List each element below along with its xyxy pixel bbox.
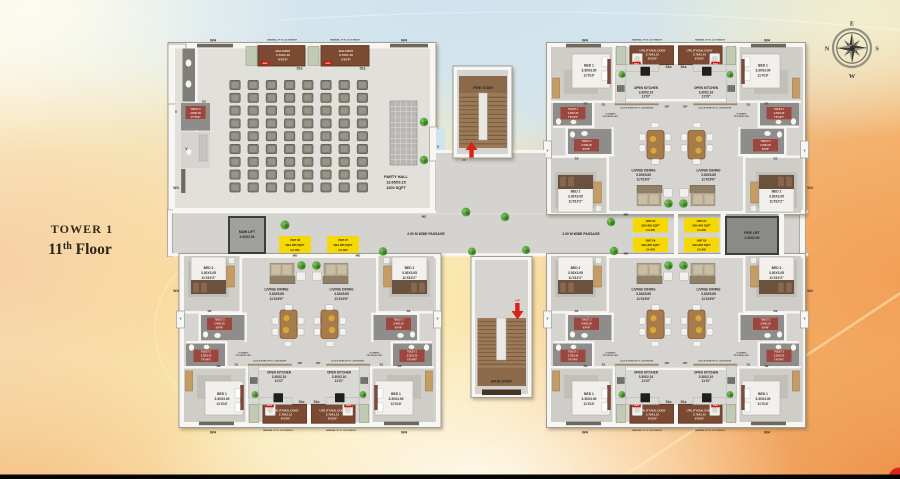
svg-text:MD: MD [422, 215, 427, 219]
svg-text:D1a: D1a [681, 65, 687, 69]
svg-text:HANDRAIL UP TO 1.20 M HEIGHT: HANDRAIL UP TO 1.20 M HEIGHT [263, 429, 294, 432]
svg-text:D2: D2 [774, 156, 778, 160]
svg-text:D1a: D1a [297, 67, 303, 71]
svg-text:HANDRAIL UP TO 1.20 M HEIGHT: HANDRAIL UP TO 1.20 M HEIGHT [632, 429, 663, 432]
svg-text:MD: MD [624, 213, 629, 217]
svg-text:HANDRAIL UP TO 1.20 M HEIGHT: HANDRAIL UP TO 1.20 M HEIGHT [695, 429, 726, 432]
svg-text:D2: D2 [217, 364, 221, 368]
svg-text:W4: W4 [210, 430, 217, 435]
svg-text:V: V [436, 317, 438, 321]
svg-text:KW2: KW2 [713, 405, 719, 407]
svg-text:D1: D1 [380, 363, 384, 367]
svg-text:W4: W4 [210, 38, 217, 43]
svg-text:OP: OP [683, 104, 687, 108]
svg-text:V: V [803, 149, 805, 153]
svg-text:MD: MD [356, 254, 361, 258]
svg-text:MAIN STAIR: MAIN STAIR [491, 380, 512, 384]
svg-text:HANDRAIL UP TO 1.20 M HEIGHT: HANDRAIL UP TO 1.20 M HEIGHT [695, 39, 726, 42]
svg-text:TOILET 12.25X1.357'6"X4'6": TOILET 12.25X1.357'6"X4'6" [568, 109, 579, 119]
svg-text:MAIN LIFT2.00X2.00: MAIN LIFT2.00X2.00 [239, 230, 255, 239]
svg-text:D2: D2 [208, 309, 212, 313]
svg-text:N: N [825, 46, 830, 53]
svg-text:D1a: D1a [681, 400, 687, 404]
svg-text:BLOCK WORK UP TO 1.20M HEIGHT: BLOCK WORK UP TO 1.20M HEIGHT [332, 361, 366, 363]
svg-text:OP: OP [665, 104, 669, 108]
svg-text:W: W [849, 73, 856, 80]
svg-text:D2: D2 [765, 364, 769, 368]
svg-text:OP: OP [316, 361, 320, 365]
svg-text:UP: UP [462, 158, 466, 162]
svg-text:2.00 M WIDE PASSAGE: 2.00 M WIDE PASSAGE [407, 232, 445, 236]
svg-text:TOILET 12.25X1.357'6"X4'6": TOILET 12.25X1.357'6"X4'6" [774, 352, 785, 362]
svg-text:D1: D1 [747, 103, 751, 107]
svg-text:V: V [546, 149, 548, 153]
svg-text:TOILET 12.25X1.357'6"X4'6": TOILET 12.25X1.357'6"X4'6" [774, 109, 785, 119]
svg-text:D1a: D1a [299, 400, 305, 404]
svg-text:TOWER 1: TOWER 1 [51, 222, 114, 236]
svg-text:D1a: D1a [360, 67, 366, 71]
svg-text:W4: W4 [582, 430, 589, 435]
svg-text:V: V [803, 317, 805, 321]
svg-text:D1a: D1a [666, 400, 672, 404]
svg-text:BLOCK WORK UP TO 1.20M HEIGHT: BLOCK WORK UP TO 1.20M HEIGHT [621, 361, 655, 363]
svg-text:FIRE LIFT2.00X2.00: FIRE LIFT2.00X2.00 [744, 231, 759, 240]
svg-text:2.00 M WIDE PASSAGE: 2.00 M WIDE PASSAGE [562, 232, 600, 236]
svg-text:W4: W4 [173, 186, 178, 190]
svg-text:11th Floor: 11th Floor [48, 241, 112, 259]
svg-text:BLOCK WORK UP TO 1.20M HEIGHT: BLOCK WORK UP TO 1.20M HEIGHT [254, 361, 288, 363]
svg-text:D2: D2 [765, 101, 769, 105]
svg-text:D1: D1 [602, 363, 606, 367]
svg-text:KW2: KW2 [267, 405, 273, 407]
svg-text:KW2: KW2 [346, 405, 352, 407]
svg-text:V: V [546, 317, 548, 321]
svg-text:D2: D2 [398, 364, 402, 368]
svg-text:KW2: KW2 [263, 63, 269, 65]
svg-text:OP: OP [298, 361, 302, 365]
svg-text:D2: D2 [575, 309, 579, 313]
svg-text:HANDRAIL UP TO 1.20 M HEIGHT: HANDRAIL UP TO 1.20 M HEIGHT [267, 39, 298, 42]
svg-text:D2: D2 [584, 364, 588, 368]
svg-text:D1: D1 [747, 363, 751, 367]
svg-text:S: S [875, 46, 879, 53]
svg-text:MD: MD [624, 252, 629, 256]
svg-text:W4: W4 [582, 38, 589, 43]
svg-text:D1a: D1a [666, 65, 672, 69]
svg-text:BLOCK WORK UP TO 1.20M HEIGHT: BLOCK WORK UP TO 1.20M HEIGHT [621, 108, 655, 110]
svg-text:OP: OP [683, 361, 687, 365]
svg-text:BLOCK WORK UP TO 1.20M HEIGHT: BLOCK WORK UP TO 1.20M HEIGHT [699, 108, 733, 110]
svg-text:D1a: D1a [314, 400, 320, 404]
svg-text:D1: D1 [235, 363, 239, 367]
svg-text:BLOCK WORK UP TO 1.20M HEIGHT: BLOCK WORK UP TO 1.20M HEIGHT [699, 361, 733, 363]
svg-text:V: V [179, 317, 181, 321]
svg-text:HANDRAIL UP TO 1.20 M HEIGHT: HANDRAIL UP TO 1.20 M HEIGHT [326, 429, 357, 432]
svg-text:W4: W4 [764, 430, 771, 435]
svg-text:TOILET 12.25X1.357'6"X4'6": TOILET 12.25X1.357'6"X4'6" [201, 352, 212, 362]
svg-text:E: E [850, 21, 854, 28]
svg-text:TOILET 12.25X1.357'6"X4'6": TOILET 12.25X1.357'6"X4'6" [407, 352, 418, 362]
svg-text:TOILET 33.00X1.354'7"X4'6": TOILET 33.00X1.354'7"X4'6" [190, 109, 201, 119]
svg-text:W4: W4 [807, 186, 812, 190]
svg-text:UP: UP [515, 299, 519, 303]
svg-text:W4: W4 [764, 38, 771, 43]
svg-text:KW2: KW2 [326, 63, 332, 65]
svg-text:D2: D2 [407, 309, 411, 313]
svg-text:HANDRAIL UP TO 1.20 M HEIGHT: HANDRAIL UP TO 1.20 M HEIGHT [632, 39, 663, 42]
svg-text:OP: OP [665, 361, 669, 365]
svg-text:PARTY HALL13.65X9.151200 SQFT: PARTY HALL13.65X9.151200 SQFT [384, 175, 408, 190]
svg-text:MD: MD [293, 254, 298, 258]
svg-text:W4: W4 [401, 430, 408, 435]
svg-text:HANDRAIL UP TO 1.20 M HEIGHT: HANDRAIL UP TO 1.20 M HEIGHT [330, 39, 361, 42]
svg-text:TOILET 12.25X1.357'6"X4'6": TOILET 12.25X1.357'6"X4'6" [568, 352, 579, 362]
svg-text:D1: D1 [602, 103, 606, 107]
svg-text:W4: W4 [401, 38, 408, 43]
svg-text:FIRE STAIR: FIRE STAIR [473, 86, 493, 90]
svg-text:W4: W4 [173, 289, 178, 293]
svg-text:D2: D2 [575, 156, 579, 160]
svg-text:KW2: KW2 [634, 405, 640, 407]
svg-text:D2: D2 [774, 309, 778, 313]
svg-text:D2: D2 [584, 101, 588, 105]
svg-text:W4: W4 [807, 289, 812, 293]
svg-text:D2: D2 [202, 100, 206, 104]
